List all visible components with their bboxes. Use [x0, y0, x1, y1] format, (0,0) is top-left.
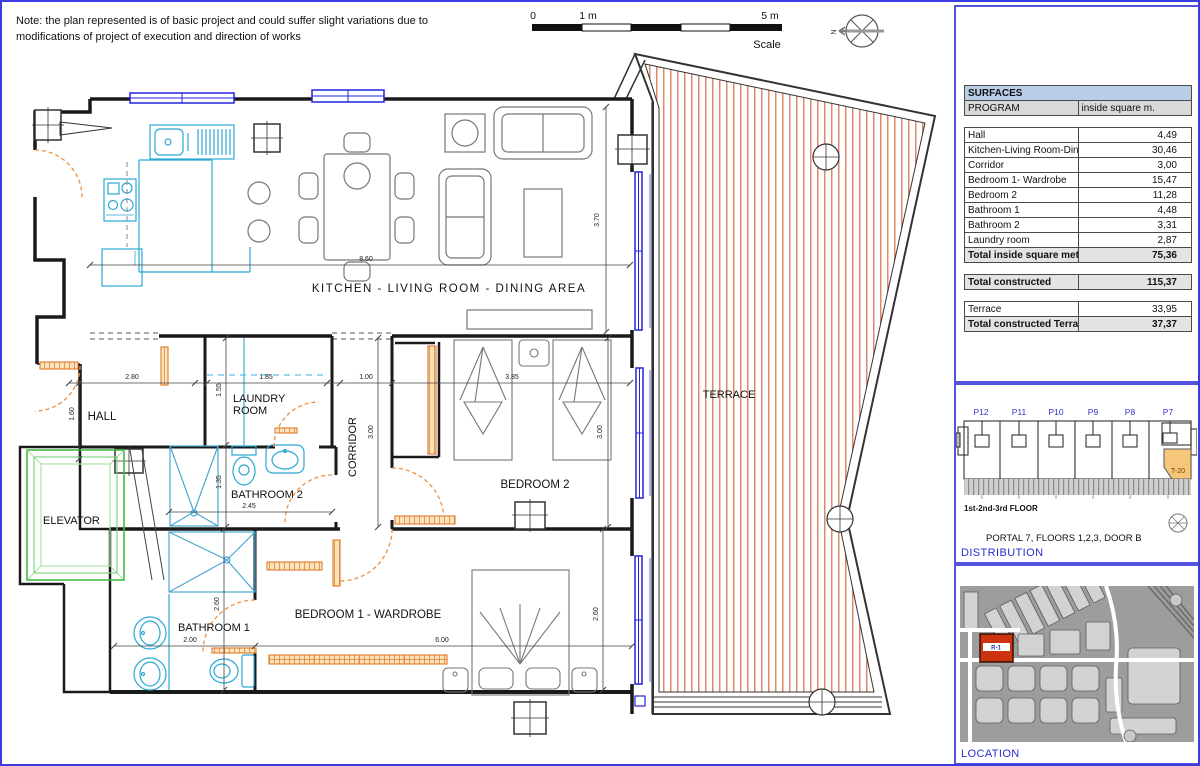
bedroom2-furniture — [454, 340, 611, 460]
table-row: Terrace33,95 — [965, 302, 1192, 317]
table-row: Bathroom 23,31 — [965, 218, 1192, 233]
dim-bedroom1-h: 2.60 — [593, 607, 600, 621]
location-title: LOCATION — [961, 748, 1020, 760]
terrace-drain — [635, 696, 645, 706]
dim-corridor-h: 3.00 — [368, 425, 375, 439]
table-row — [965, 290, 1192, 302]
scale-label: Scale — [753, 39, 781, 51]
distribution-diagram: P12 P11 P10 P9 P8 P7 — [956, 385, 1197, 545]
highlighted-unit-label: T-20 — [1171, 468, 1185, 475]
surfaces-col-value: inside square m. — [1078, 101, 1192, 116]
location-map: R-1 — [960, 586, 1194, 742]
laundry-door-arc — [274, 402, 319, 447]
table-row: Bedroom 211,28 — [965, 188, 1192, 203]
surfaces-title: SURFACES — [965, 86, 1192, 101]
table-row: Corridor3,00 — [965, 158, 1192, 173]
scale-tick-0: 0 — [530, 10, 536, 22]
dim-corridor-w: 1.00 — [359, 374, 373, 381]
dim-laundry-w: 1.85 — [259, 374, 273, 381]
compass-icon — [1169, 514, 1187, 532]
table-row — [965, 116, 1192, 128]
apartment-walls — [20, 99, 652, 714]
entry-door-leaf — [60, 122, 112, 135]
dim-hall-h: 1.60 — [69, 407, 76, 421]
label-bathroom2: BATHROOM 2 — [231, 489, 303, 501]
label-elevator: ELEVATOR — [43, 515, 100, 527]
table-row: Total constructed115,37 — [965, 275, 1192, 290]
label-corridor: CORRIDOR — [347, 417, 359, 477]
label-bedroom2: BEDROOM 2 — [500, 479, 569, 491]
bathroom-fixtures — [134, 338, 324, 690]
scale-bar: 0 1 m 5 m Scale — [530, 10, 782, 51]
dim-bathroom1-h: 2.60 — [214, 597, 221, 611]
location-panel: R-1 LOCATION — [954, 564, 1200, 765]
bedroom1-door-arc — [340, 529, 392, 581]
hall-door-arc — [35, 366, 80, 411]
dim-hall-w: 2.80 — [125, 374, 139, 381]
bedroom2-door-arc — [392, 468, 444, 520]
bedroom1-furniture — [443, 570, 597, 695]
kitchen-fixtures — [102, 125, 250, 286]
entry-door-arc — [35, 150, 82, 197]
dimension-lines — [66, 104, 635, 693]
table-row: Total inside square meter75,36 — [965, 248, 1192, 263]
terrace: TERRACE — [614, 54, 935, 715]
dim-bedroom2-h: 3.00 — [597, 425, 604, 439]
portal-label-p12: P12 — [973, 407, 988, 417]
north-compass-icon: N — [831, 15, 884, 47]
dim-bedroom1-w: 6.00 — [435, 637, 449, 644]
table-row: Laundry room2,87 — [965, 233, 1192, 248]
portal-label-p10: P10 — [1048, 407, 1063, 417]
surfaces-panel: SURFACES PROGRAM inside square m. Hall4,… — [954, 5, 1200, 383]
label-bathroom1: BATHROOM 1 — [178, 622, 250, 634]
building-outline — [956, 421, 1197, 479]
dim-bedroom2-w: 3.85 — [505, 374, 519, 381]
table-row: Kitchen-Living Room-Dining area30,46 — [965, 143, 1192, 158]
label-bedroom1: BEDROOM 1 - WARDROBE — [295, 609, 442, 621]
dim-bathroom2-w: 2.45 — [242, 503, 256, 510]
table-row — [965, 263, 1192, 275]
portal-label-p8: P8 — [1125, 407, 1136, 417]
label-hall: HALL — [88, 411, 117, 423]
label-kitchen-living: KITCHEN - LIVING ROOM - DINING AREA — [312, 283, 586, 295]
dim-laundry-h: 1.55 — [216, 383, 223, 397]
dim-living-w: 8.60 — [359, 256, 373, 263]
distribution-panel: P12 P11 P10 P9 P8 P7 — [954, 383, 1200, 564]
table-row: Hall4,49 — [965, 128, 1192, 143]
portal-caption: PORTAL 7, FLOORS 1,2,3, DOOR B — [986, 533, 1142, 544]
portal-label-p7: P7 — [1163, 407, 1174, 417]
structural-columns — [32, 107, 650, 737]
dim-bathroom1-w: 2.00 — [183, 637, 197, 644]
portal-label-p9: P9 — [1088, 407, 1099, 417]
portal-label-p11: P11 — [1012, 407, 1027, 417]
dim-bathroom2-h: 1.35 — [216, 475, 223, 489]
label-laundry-1: LAUNDRY — [233, 393, 286, 405]
floor-plan: 0 1 m 5 m Scale N TERRACE — [2, 2, 950, 766]
location-marker: R-1 — [980, 634, 1013, 662]
surfaces-col-program: PROGRAM — [965, 101, 1079, 116]
label-laundry-2: ROOM — [233, 405, 267, 417]
plan-sheet: Note: the plan represented is of basic p… — [0, 0, 1200, 766]
table-row: Bedroom 1- Wardrobe15,47 — [965, 173, 1192, 188]
location-marker-label: R-1 — [991, 646, 1001, 652]
table-row: Total constructed Terraces37,37 — [965, 317, 1192, 332]
floor-note: 1st-2nd-3rd FLOOR — [964, 504, 1038, 513]
distribution-title: DISTRIBUTION — [961, 547, 1043, 559]
terrace-strip — [964, 479, 1191, 495]
surfaces-table: SURFACES PROGRAM inside square m. Hall4,… — [964, 85, 1192, 332]
scale-tick-5m: 5 m — [761, 10, 779, 22]
north-letter: N — [831, 29, 838, 34]
table-row: Bathroom 14,48 — [965, 203, 1192, 218]
terrace-label: TERRACE — [703, 389, 756, 401]
scale-tick-1m: 1 m — [579, 10, 597, 22]
living-furniture — [248, 107, 592, 329]
dim-living-h: 3.70 — [594, 213, 601, 227]
